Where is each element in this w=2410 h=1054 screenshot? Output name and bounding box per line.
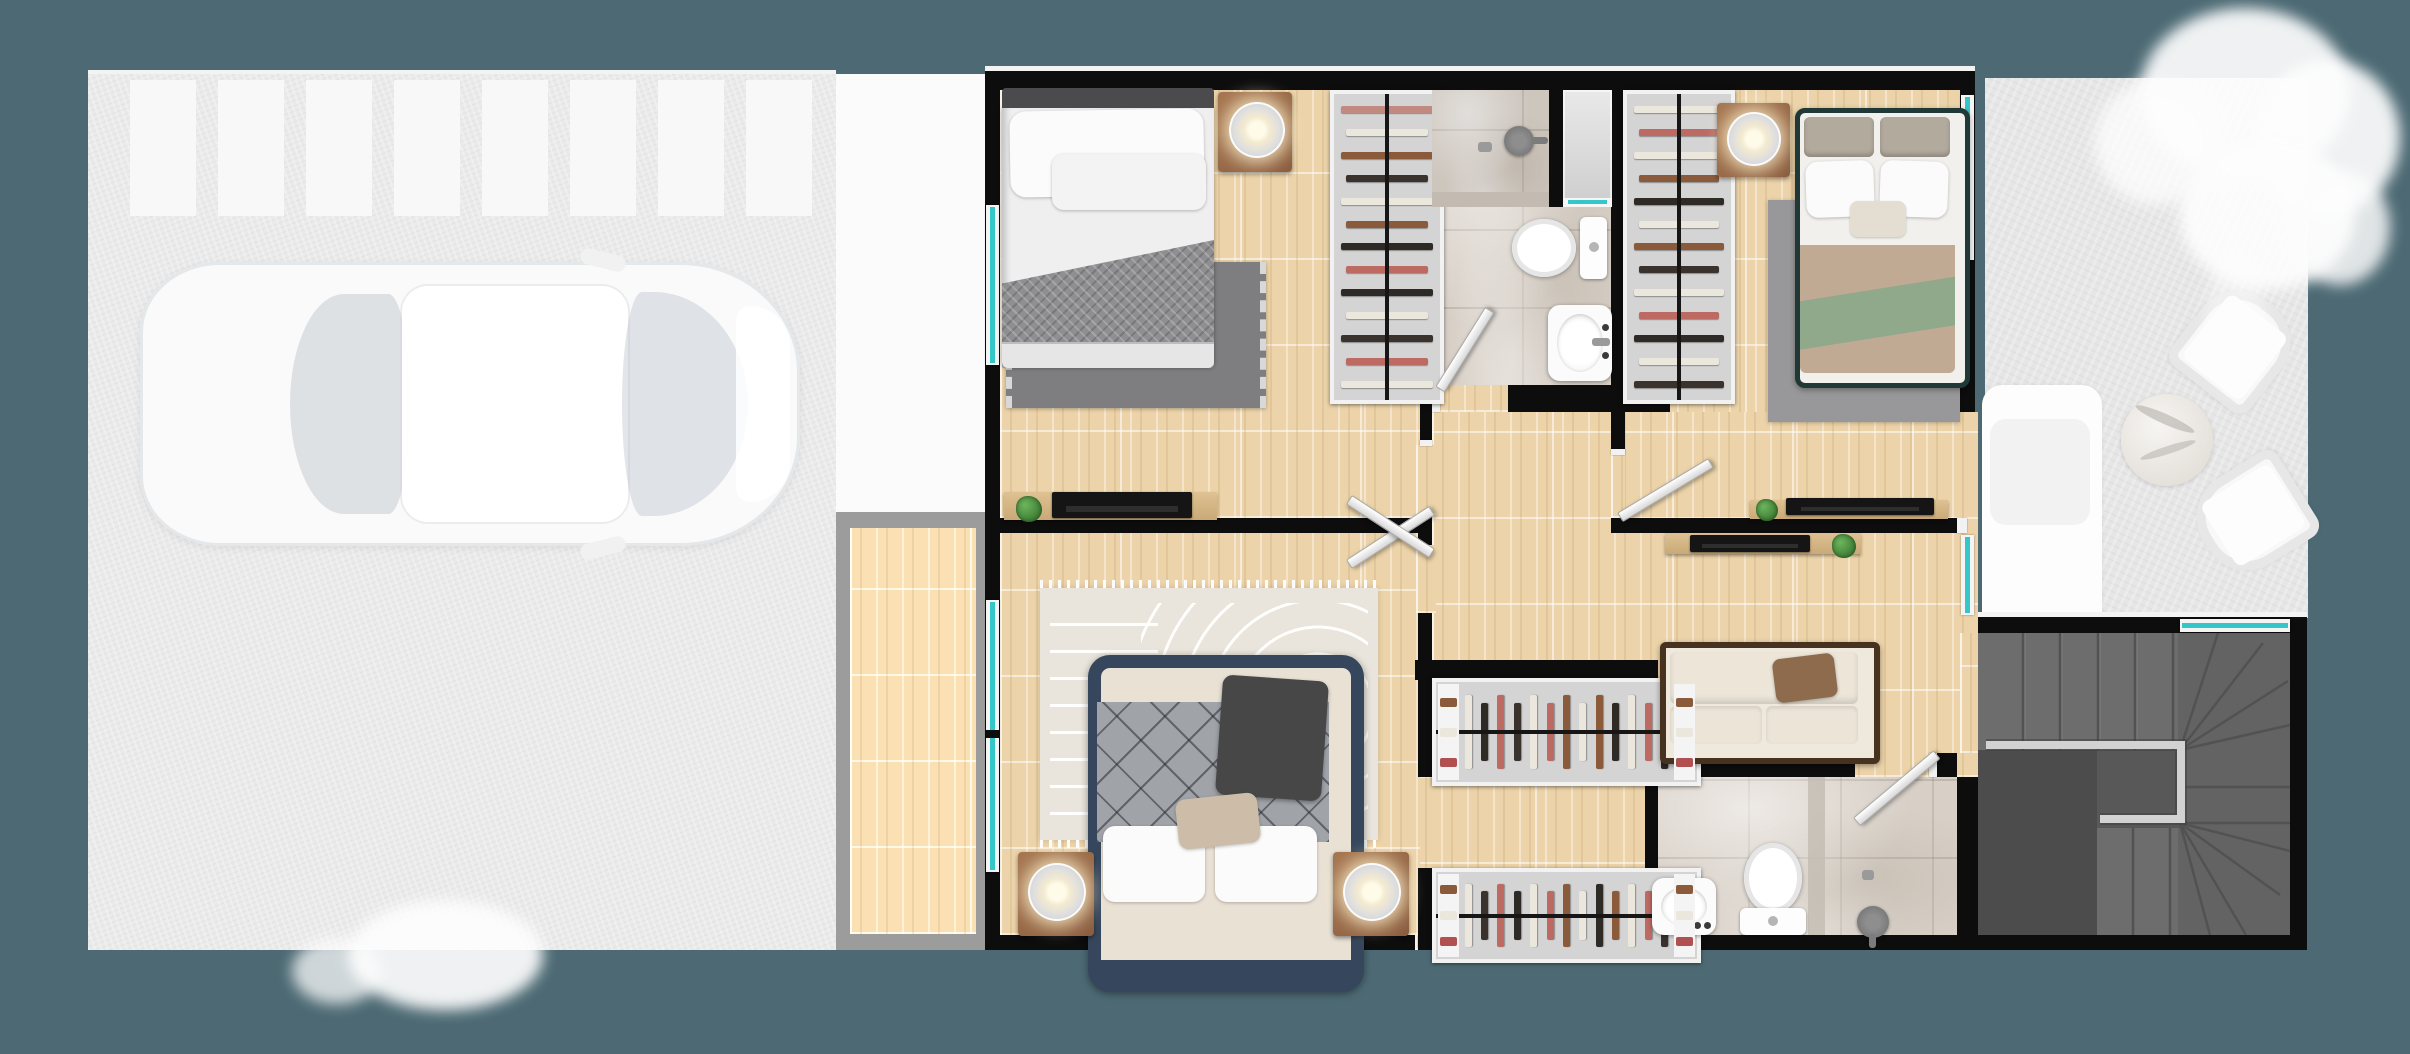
hanging-clothes-item	[1497, 695, 1504, 769]
hanging-clothes-item	[1481, 891, 1488, 940]
hanging-clothes-item	[1341, 381, 1433, 388]
sink-bottom-knob-b	[1704, 922, 1711, 929]
bathroom-top-cabinet	[1563, 90, 1612, 200]
hanging-clothes-item	[1639, 266, 1719, 273]
parking-stripe	[130, 80, 196, 216]
hanging-clothes-item	[1596, 884, 1603, 947]
closet-shelf-right	[1674, 684, 1695, 780]
window-bedroom-left	[986, 205, 999, 365]
hanging-clothes-item	[1612, 891, 1619, 940]
hanging-clothes-item	[1514, 891, 1521, 940]
sink-top-knob-b	[1602, 352, 1609, 359]
showerhead-top	[1504, 126, 1534, 156]
floor-plan-canvas	[0, 0, 2410, 1054]
wall-closet-north	[1415, 660, 1658, 680]
staircase	[1978, 633, 2290, 935]
bed-right-blanket	[1800, 245, 1955, 373]
lamp-bedroom-right	[1727, 112, 1781, 166]
folded-clothes-item	[1676, 758, 1693, 767]
hanging-clothes-item	[1639, 312, 1719, 319]
plant-hallway	[1832, 534, 1856, 558]
hanging-clothes-item	[1346, 129, 1428, 136]
porch-roof	[836, 74, 988, 512]
frame-hall-window-end	[1957, 518, 1967, 533]
bed-right-blanket-green-band	[1800, 275, 1955, 350]
car-rear-window	[290, 294, 410, 514]
toilet-top-bowl	[1512, 219, 1576, 277]
garage-top-edge	[88, 70, 836, 74]
sink-bottom-knob-a	[1694, 922, 1701, 929]
closet-shelf-left	[1438, 874, 1459, 957]
shower-top-valve	[1478, 142, 1492, 152]
car-hood-highlight	[736, 306, 790, 502]
folded-clothes-item	[1676, 885, 1693, 894]
car	[140, 262, 800, 546]
bush-foliage	[348, 900, 543, 1010]
plant-bedroom-left	[1016, 496, 1042, 522]
hanging-clothes-item	[1481, 703, 1488, 760]
sofa-pillow-brown	[1772, 652, 1839, 703]
closet-shelf-left	[1438, 684, 1459, 780]
patio-daybed	[1982, 385, 2102, 618]
showerhead-bottom-arm	[1869, 934, 1876, 948]
hanging-clothes-item	[1579, 703, 1586, 760]
folded-clothes-item	[1440, 937, 1457, 946]
hanging-clothes-item	[1341, 335, 1433, 342]
folded-clothes-item	[1440, 728, 1457, 737]
folded-clothes-item	[1440, 911, 1457, 920]
hanging-clothes-item	[1634, 152, 1724, 159]
hanging-clothes-item	[1645, 703, 1652, 760]
hanging-clothes-item	[1341, 106, 1433, 113]
hanging-clothes-item	[1634, 106, 1724, 113]
bed-right-headboard-right	[1880, 117, 1950, 157]
hanging-clothes-item	[1346, 221, 1428, 228]
master-rug-fringe-top	[1040, 580, 1378, 588]
hanging-clothes-item	[1634, 198, 1724, 205]
showerhead-top-arm	[1531, 137, 1548, 144]
bed-right	[1795, 108, 1970, 388]
parking-stripe	[570, 80, 636, 216]
wardrobe-bedroom-left	[1330, 90, 1444, 404]
hanging-clothes-item	[1639, 221, 1719, 228]
hanging-clothes-item	[1514, 703, 1521, 760]
bed-pillow-lumbar	[1052, 154, 1206, 210]
parking-stripe	[306, 80, 372, 216]
hanging-clothes-item	[1628, 884, 1635, 947]
hanging-clothes-item	[1639, 358, 1719, 365]
hanging-clothes-item	[1634, 335, 1724, 342]
hanging-clothes-item	[1346, 175, 1428, 182]
hanging-clothes-item	[1634, 289, 1724, 296]
hanging-clothes-item	[1634, 243, 1724, 250]
toilet-top-button	[1589, 242, 1599, 252]
wall-bedrooms-divider-left	[985, 518, 1432, 533]
hanging-clothes-item	[1530, 695, 1537, 769]
hanging-clothes-item	[1634, 381, 1724, 388]
folded-clothes-item	[1440, 758, 1457, 767]
hanging-clothes-item	[1547, 891, 1554, 940]
parking-stripe	[658, 80, 724, 216]
parking-stripe	[746, 80, 812, 216]
toilet-bottom-bowl	[1744, 843, 1802, 913]
window-master-mullion	[986, 730, 999, 738]
hanging-clothes-item	[1612, 703, 1619, 760]
laptop-bedroom-left	[1052, 492, 1192, 518]
parking-stripe	[482, 80, 548, 216]
shower-bottom-divider	[1808, 777, 1825, 935]
toilet-bottom-button	[1768, 916, 1778, 926]
hanging-clothes-item	[1628, 695, 1635, 769]
shower-top-threshold	[1432, 192, 1549, 207]
patio-daybed-cushion	[1990, 419, 2090, 525]
balcony	[836, 512, 990, 950]
balcony-floor	[850, 528, 976, 934]
parking-stripes	[88, 80, 836, 216]
bush-foliage-small	[292, 938, 382, 1004]
hanging-clothes-item	[1341, 152, 1433, 159]
plant-bedroom-right	[1756, 499, 1778, 521]
table-marble-vein2	[2139, 437, 2197, 463]
doorway-bathroom-top-floor	[1438, 385, 1508, 412]
doorframe-bedroom-left	[1420, 440, 1432, 446]
parking-stripe	[394, 80, 460, 216]
folded-clothes-item	[1676, 911, 1693, 920]
hanging-clothes-item	[1341, 243, 1433, 250]
closet-shelf-right	[1674, 874, 1695, 957]
hanging-clothes-item	[1579, 891, 1586, 940]
folded-clothes-item	[1440, 885, 1457, 894]
hanging-clothes-item	[1346, 266, 1428, 273]
wall-bedroom-right-south	[1611, 518, 1967, 533]
folded-clothes-item	[1676, 937, 1693, 946]
shower-bottom-valve	[1862, 870, 1874, 880]
wall-master-closet-b	[1418, 613, 1432, 777]
bed-foot-fold	[1002, 342, 1214, 368]
lamp-master-left	[1028, 863, 1086, 921]
folded-clothes-item	[1440, 698, 1457, 707]
hanging-clothes-item	[1645, 891, 1652, 940]
hanging-clothes-item	[1341, 198, 1433, 205]
laptop-hallway	[1690, 535, 1810, 552]
lamp-master-right	[1343, 863, 1401, 921]
bed-left	[1002, 88, 1214, 372]
shower-partition-wall	[1549, 90, 1563, 207]
hanging-clothes-item	[1346, 358, 1428, 365]
hanging-clothes-item	[1639, 129, 1719, 136]
hanging-clothes-item	[1465, 695, 1472, 769]
folded-clothes-item	[1676, 728, 1693, 737]
bed-master-pillow-accent	[1175, 792, 1262, 850]
tree-canopy-4	[2095, 80, 2220, 205]
sink-top-faucet	[1592, 338, 1610, 346]
doorframe-bedroom-right	[1611, 449, 1625, 455]
hanging-clothes-item	[1497, 884, 1504, 947]
bed-master	[1088, 655, 1364, 992]
hanging-clothes-item	[1530, 884, 1537, 947]
car-roof	[402, 286, 628, 522]
patio-round-table	[2121, 394, 2213, 486]
parking-stripe	[218, 80, 284, 216]
cabinet-glass-accent	[1568, 200, 1607, 204]
hanging-clothes-item	[1346, 312, 1428, 319]
hanging-clothes-item	[1563, 884, 1570, 947]
table-marble-vein	[2134, 401, 2197, 436]
hanging-clothes-item	[1563, 695, 1570, 769]
tree-canopy-5	[2290, 170, 2390, 285]
sink-top-knob-a	[1602, 324, 1609, 331]
doorway-bedroom-left-floor	[1416, 445, 1436, 515]
bed-right-pillow-small	[1850, 201, 1906, 237]
window-staircase	[2180, 619, 2290, 632]
sofa-seat-right	[1766, 706, 1858, 744]
hanging-clothes-item	[1639, 175, 1719, 182]
folded-clothes-item	[1676, 698, 1693, 707]
bed-headboard	[1002, 88, 1214, 108]
bed-master-throw	[1215, 674, 1329, 801]
window-hallway	[1961, 535, 1974, 615]
hanging-clothes-item	[1465, 884, 1472, 947]
stair-doorway-floor	[1960, 633, 1980, 753]
tree-branch-wisp	[2205, 255, 2265, 395]
laptop-bedroom-right	[1786, 498, 1934, 515]
hanging-clothes-item	[1341, 289, 1433, 296]
hanging-clothes-item	[1596, 695, 1603, 769]
hanging-clothes-item	[1547, 703, 1554, 760]
lamp-bedroom-left	[1229, 102, 1285, 158]
wall-master-closet-c	[1418, 868, 1432, 950]
bed-right-headboard-left	[1804, 117, 1874, 157]
